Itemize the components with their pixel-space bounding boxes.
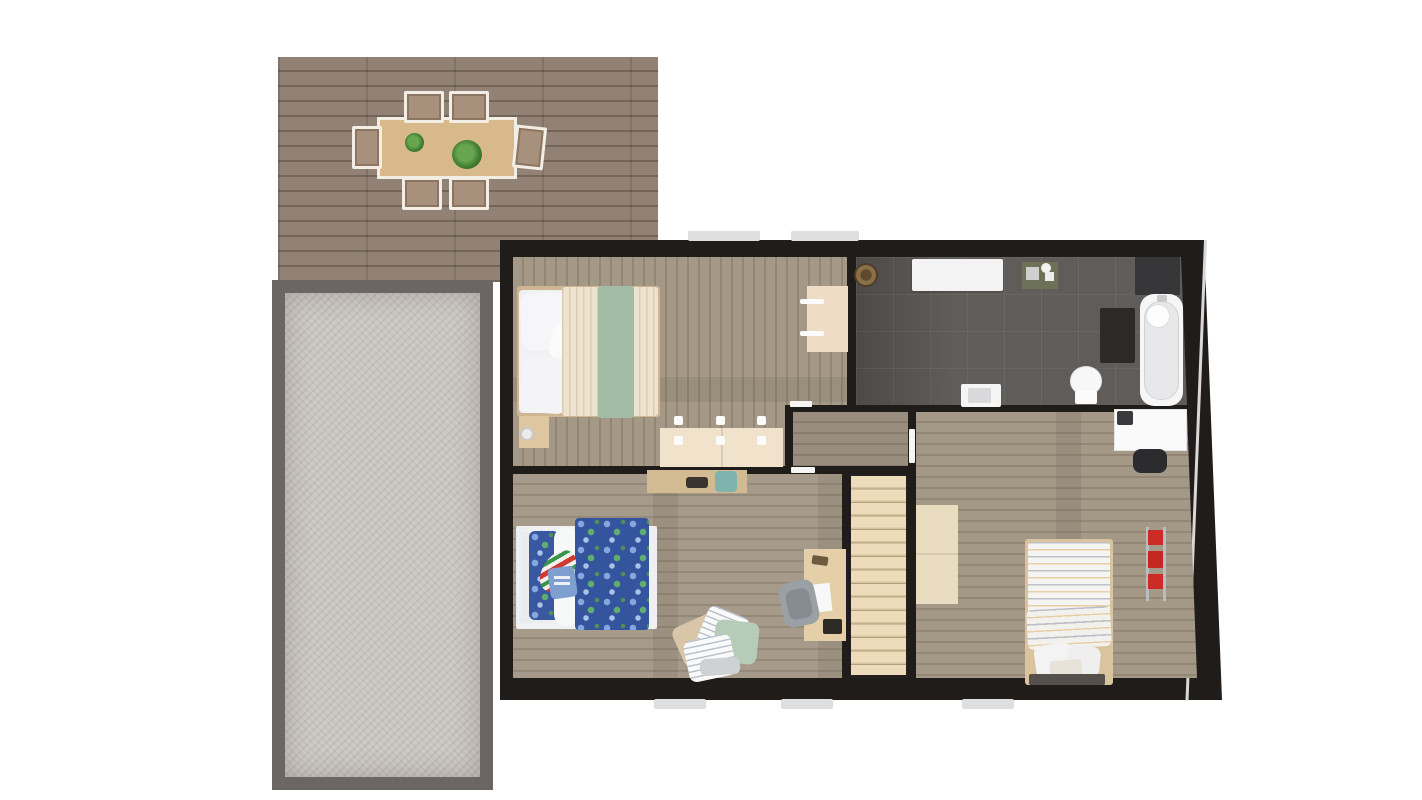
staircase — [851, 476, 906, 675]
ladder-red-box-1 — [1148, 530, 1163, 545]
dining-chair-bottom-left — [402, 177, 442, 210]
dining-chair-top-right — [449, 91, 489, 123]
vanity-faucet-1 — [674, 416, 683, 425]
vanity-knob-3 — [757, 436, 766, 445]
floor-plan-canvas — [0, 0, 1422, 800]
vanity-faucet-2 — [716, 416, 725, 425]
vanity-faucet-3 — [757, 416, 766, 425]
bed1-throw-sage — [598, 286, 634, 418]
toilet-tank — [1075, 391, 1097, 404]
dining-chair-bottom-right — [449, 177, 489, 210]
window-bottom-2 — [781, 699, 833, 709]
vanity-knob-2 — [716, 436, 725, 445]
bathtub-faucet — [1157, 295, 1167, 302]
window-bottom-1 — [654, 699, 706, 709]
door-bedroom-1 — [790, 401, 812, 407]
bed2-duvet — [575, 518, 649, 630]
window-bottom-3 — [962, 699, 1014, 709]
ladder-red-box-2 — [1148, 551, 1163, 568]
bath-white-rug — [912, 259, 1003, 291]
dresser-handle-1 — [800, 299, 824, 304]
sideboard-tray — [686, 477, 708, 488]
bed3-chair — [1133, 449, 1167, 473]
door-bedroom-2 — [791, 467, 815, 473]
sideboard-basket — [715, 471, 737, 492]
dining-table — [377, 117, 517, 179]
bed3-foot-mat — [1029, 674, 1105, 685]
window-top-2 — [791, 231, 859, 241]
table-plant-large — [452, 140, 482, 169]
table-plant-small — [405, 133, 424, 152]
pillow-text-line-2 — [554, 582, 570, 585]
door-bedroom-3 — [909, 429, 915, 463]
cushion-gray-throw — [699, 657, 740, 677]
gravel-driveway — [272, 280, 493, 790]
dining-chair-right — [512, 124, 547, 170]
bath-dark-panel — [1135, 257, 1180, 295]
pillow-text-line-1 — [554, 576, 570, 579]
ladder-red-box-3 — [1148, 574, 1163, 589]
dining-chair-left — [352, 126, 382, 169]
window-top-1 — [688, 231, 760, 241]
desk-laptop — [1117, 411, 1133, 425]
bath-sink-basin — [968, 388, 991, 403]
wardrobe-divider — [916, 553, 958, 555]
bathtub-shower-head — [1147, 305, 1169, 327]
bed1-dresser — [807, 286, 848, 352]
ladder-rail-right — [1163, 527, 1166, 601]
bath-basket — [854, 263, 878, 287]
bed1-lamp — [520, 427, 534, 441]
vanity-divider — [721, 428, 723, 467]
olive-shelf-box-gray — [1026, 267, 1039, 280]
olive-shelf-box-white — [1045, 272, 1054, 281]
dining-chair-top-left — [404, 91, 444, 123]
desk-tablet — [823, 619, 842, 634]
vanity-knob-1 — [674, 436, 683, 445]
bath-dark-mat — [1100, 308, 1135, 363]
floor-landing — [793, 412, 908, 466]
dresser-handle-2 — [800, 331, 824, 336]
wall-landing-left — [785, 405, 793, 474]
toilet-bowl — [1071, 367, 1101, 394]
